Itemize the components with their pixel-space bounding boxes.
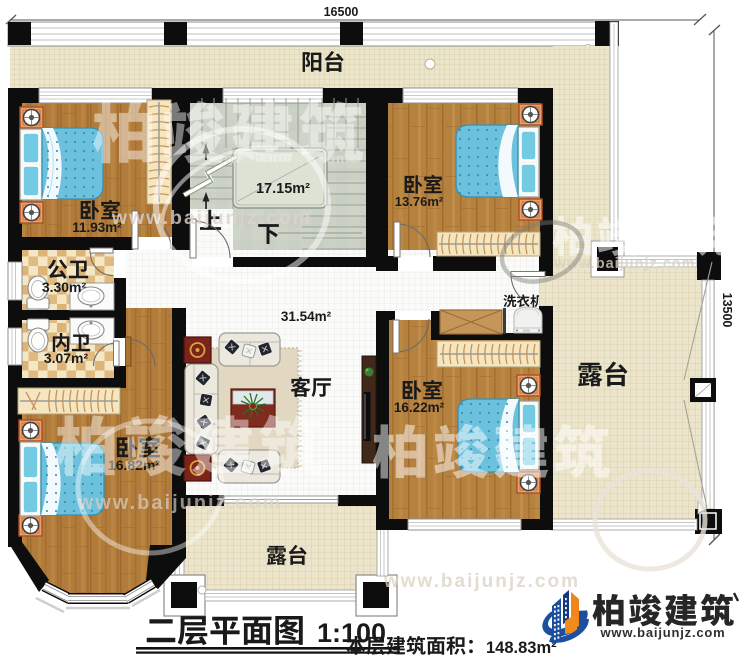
- svg-text:16500: 16500: [324, 5, 359, 19]
- svg-text:148.83m²: 148.83m²: [486, 639, 557, 657]
- svg-text:www.baijunjz.com: www.baijunjz.com: [383, 571, 580, 592]
- svg-text:1:100: 1:100: [317, 618, 386, 648]
- svg-text:www.baijunjz.com: www.baijunjz.com: [77, 492, 283, 514]
- svg-text:3.30m²: 3.30m²: [42, 279, 87, 295]
- svg-text:www.baijunjz.com: www.baijunjz.com: [111, 207, 312, 229]
- svg-text:3.07m²: 3.07m²: [44, 350, 89, 366]
- svg-text:www.baijunjz.com: www.baijunjz.com: [600, 625, 726, 640]
- svg-text:17.15m²: 17.15m²: [256, 181, 310, 197]
- svg-text:13500: 13500: [720, 293, 734, 328]
- svg-text:31.54m²: 31.54m²: [281, 309, 332, 324]
- svg-text:13.76m²: 13.76m²: [395, 194, 444, 209]
- svg-text:16.22m²: 16.22m²: [394, 400, 445, 415]
